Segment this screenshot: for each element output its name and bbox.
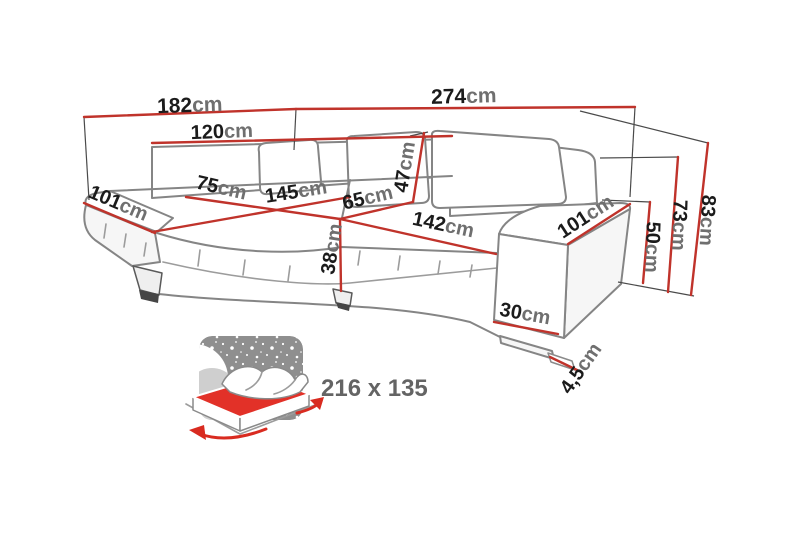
dim-75-line <box>186 197 340 219</box>
base-rail <box>500 336 554 359</box>
bed-size-label: 216 x 135 <box>321 375 428 402</box>
ext-83-top <box>580 111 708 143</box>
back-cushion-2 <box>432 131 566 208</box>
ext-182-left <box>84 117 89 200</box>
dim-145-line <box>152 197 350 232</box>
sleeping-function-inset: 216 x 135 <box>160 336 428 440</box>
ext-73-top <box>600 157 678 158</box>
dim-274-label: 274cm <box>431 84 497 109</box>
sofa-dimension-diagram: 182cm 274cm 120cm 101cm 75cm 145cm 65cm … <box>0 0 800 533</box>
ext-baseline-bottom-right <box>618 282 694 296</box>
chaise-leg <box>133 266 162 295</box>
dim-120-label: 120cm <box>190 120 253 144</box>
dim-83-label: 83cm <box>695 194 720 246</box>
dim-50-label: 50cm <box>640 221 664 273</box>
dim-73-label: 73cm <box>667 199 691 251</box>
dim-38-label: 38cm <box>317 222 347 276</box>
dim-182-label: 182cm <box>157 93 223 118</box>
ext-274-right <box>630 107 635 197</box>
base-bottom-edge <box>150 293 500 337</box>
sofa-drawing <box>84 131 630 370</box>
dim-45-label: 4,5cm <box>556 339 607 398</box>
unfold-arrow-left-head <box>189 425 206 440</box>
